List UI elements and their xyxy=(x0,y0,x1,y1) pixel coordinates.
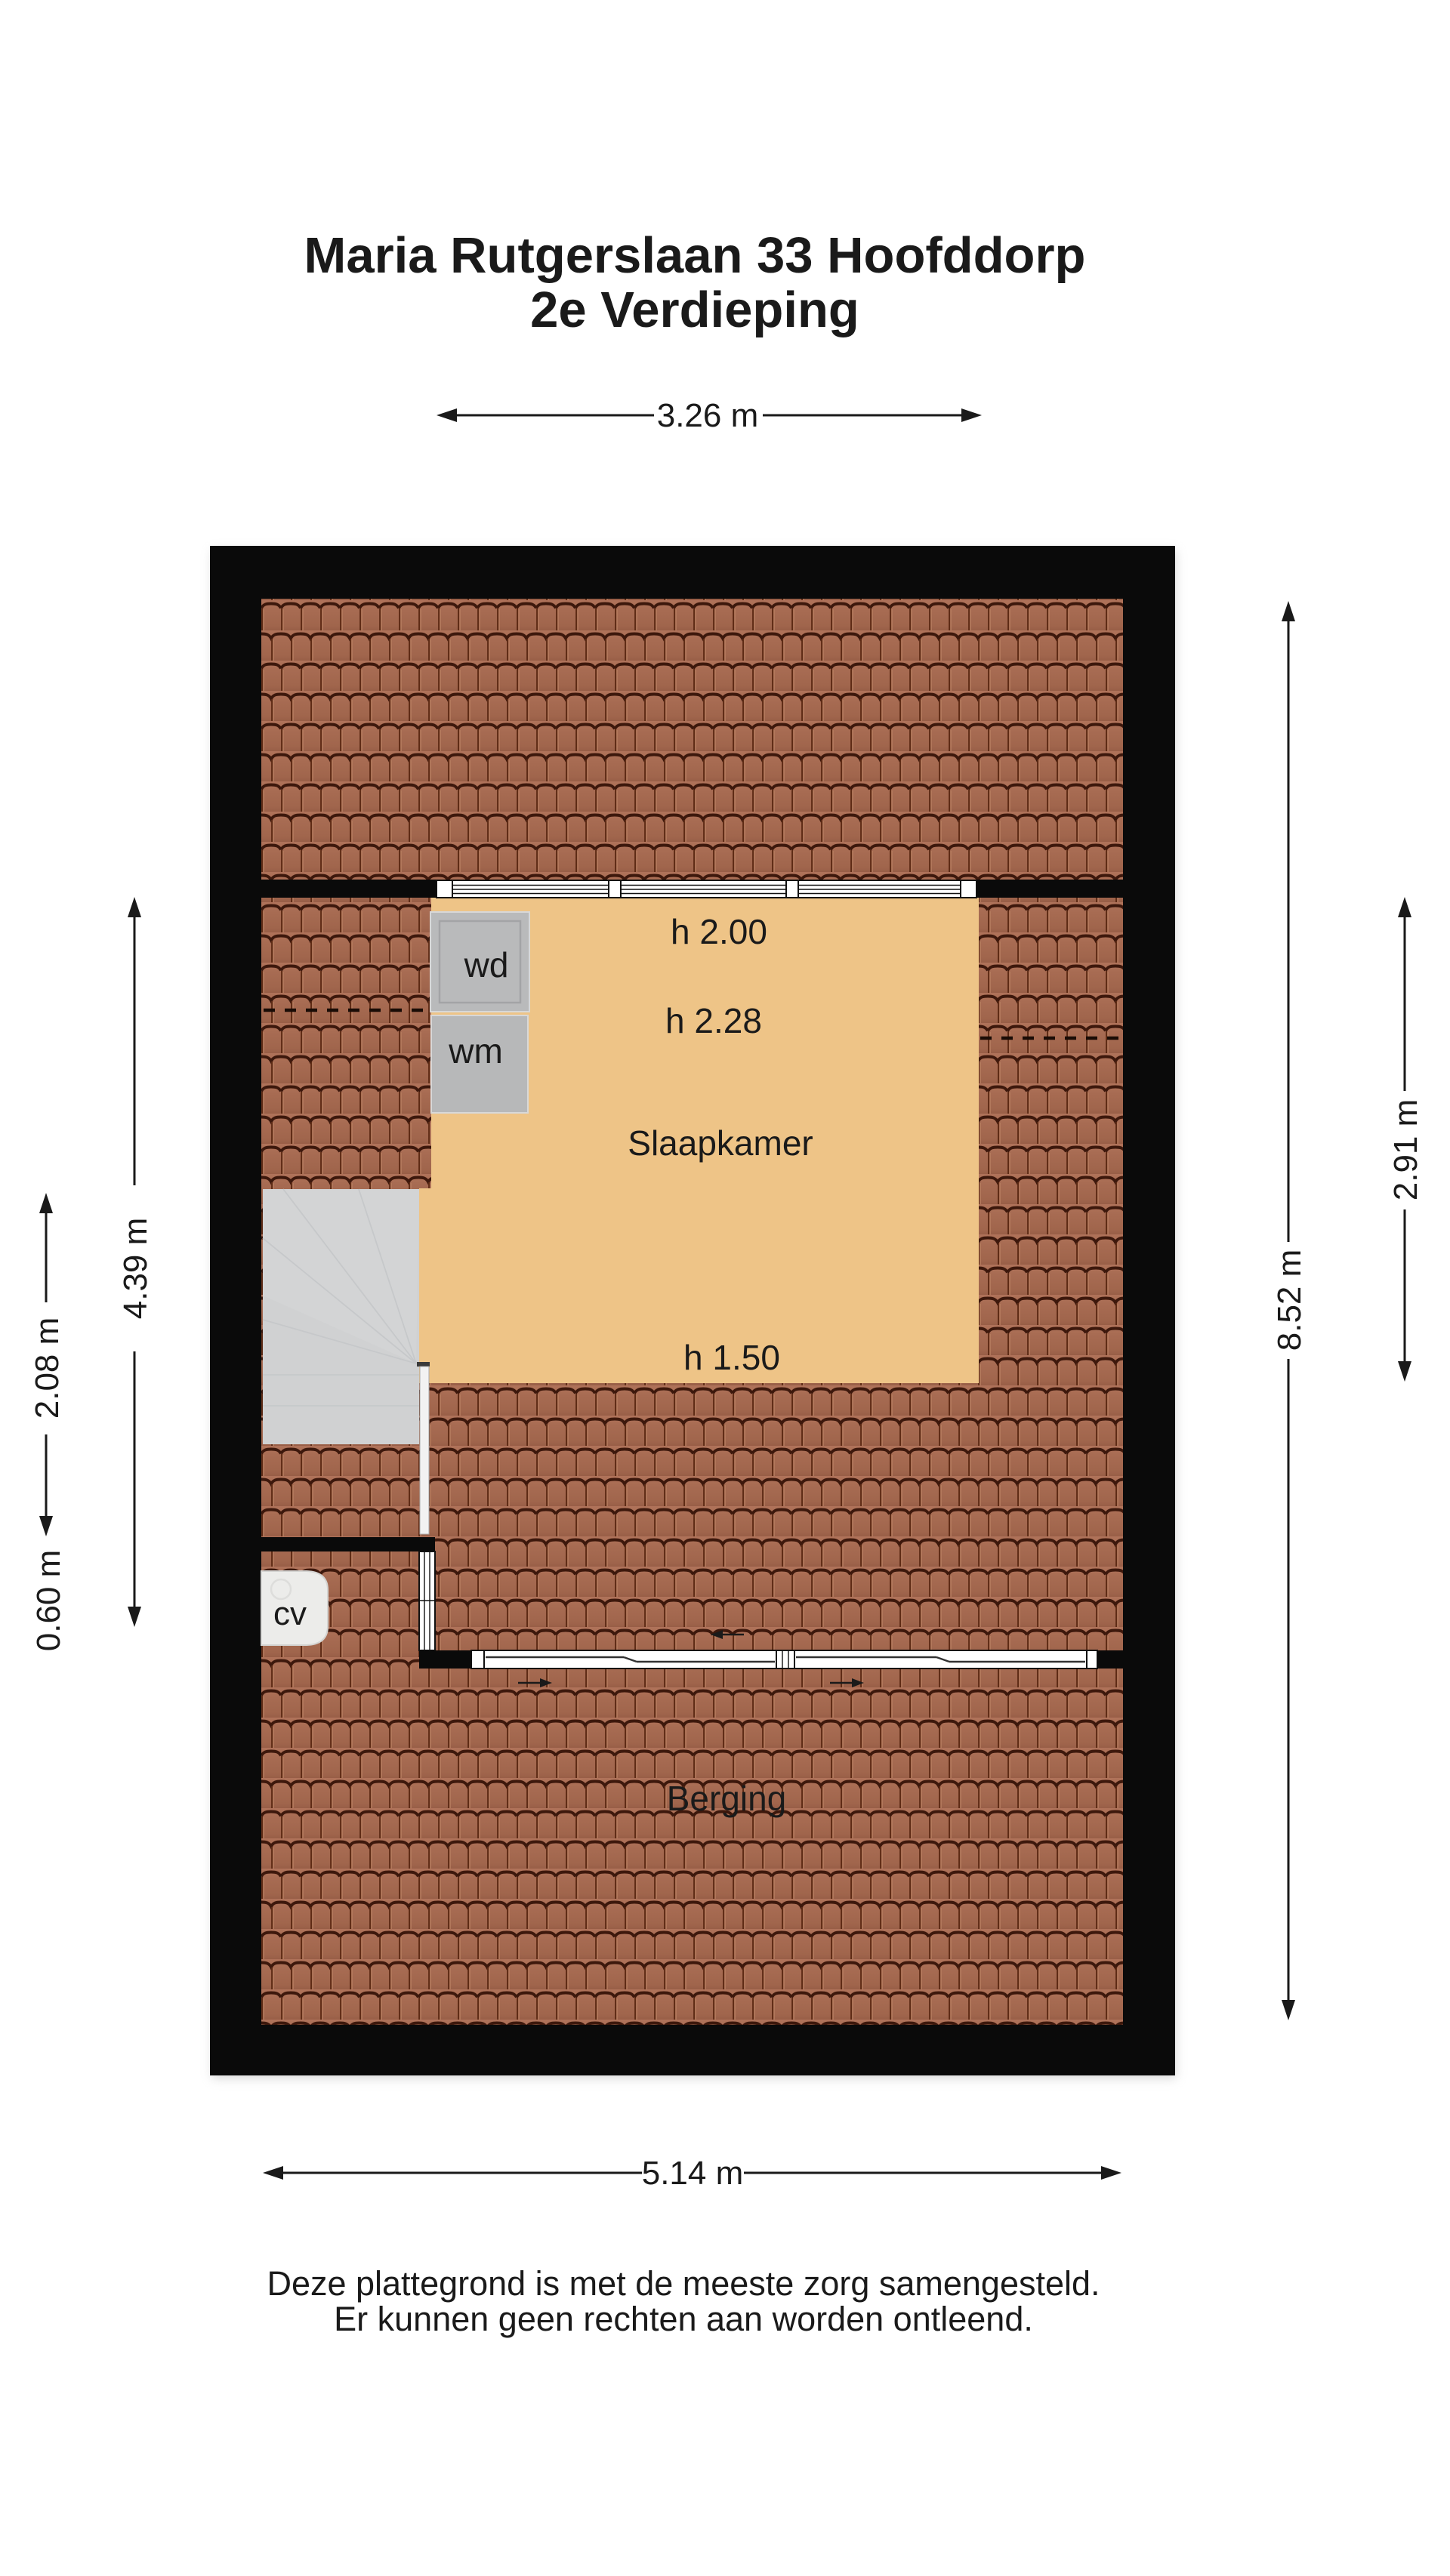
svg-text:0.60 m: 0.60 m xyxy=(30,1550,67,1652)
svg-text:2e Verdieping: 2e Verdieping xyxy=(530,282,859,338)
svg-text:cv: cv xyxy=(273,1595,307,1632)
svg-text:Maria Rutgerslaan 33 Hoofddorp: Maria Rutgerslaan 33 Hoofddorp xyxy=(304,227,1086,284)
svg-text:Deze plattegrond is met de mee: Deze plattegrond is met de meeste zorg s… xyxy=(267,2264,1100,2303)
svg-text:wd: wd xyxy=(464,945,509,984)
svg-text:Berging: Berging xyxy=(667,1779,787,1818)
svg-text:8.52 m: 8.52 m xyxy=(1271,1249,1308,1351)
svg-text:2.08 m: 2.08 m xyxy=(29,1317,66,1419)
svg-text:h 2.28: h 2.28 xyxy=(665,1001,762,1040)
svg-text:3.26 m: 3.26 m xyxy=(657,397,759,434)
svg-text:h 2.00: h 2.00 xyxy=(671,912,767,951)
svg-text:Slaapkamer: Slaapkamer xyxy=(628,1123,813,1163)
svg-text:wm: wm xyxy=(448,1031,503,1071)
svg-text:5.14 m: 5.14 m xyxy=(642,2155,744,2192)
svg-text:h 1.50: h 1.50 xyxy=(683,1338,780,1377)
svg-text:4.39 m: 4.39 m xyxy=(117,1218,154,1320)
svg-text:2.91 m: 2.91 m xyxy=(1387,1099,1424,1201)
svg-text:Er kunnen geen rechten aan wor: Er kunnen geen rechten aan worden ontlee… xyxy=(334,2300,1033,2338)
